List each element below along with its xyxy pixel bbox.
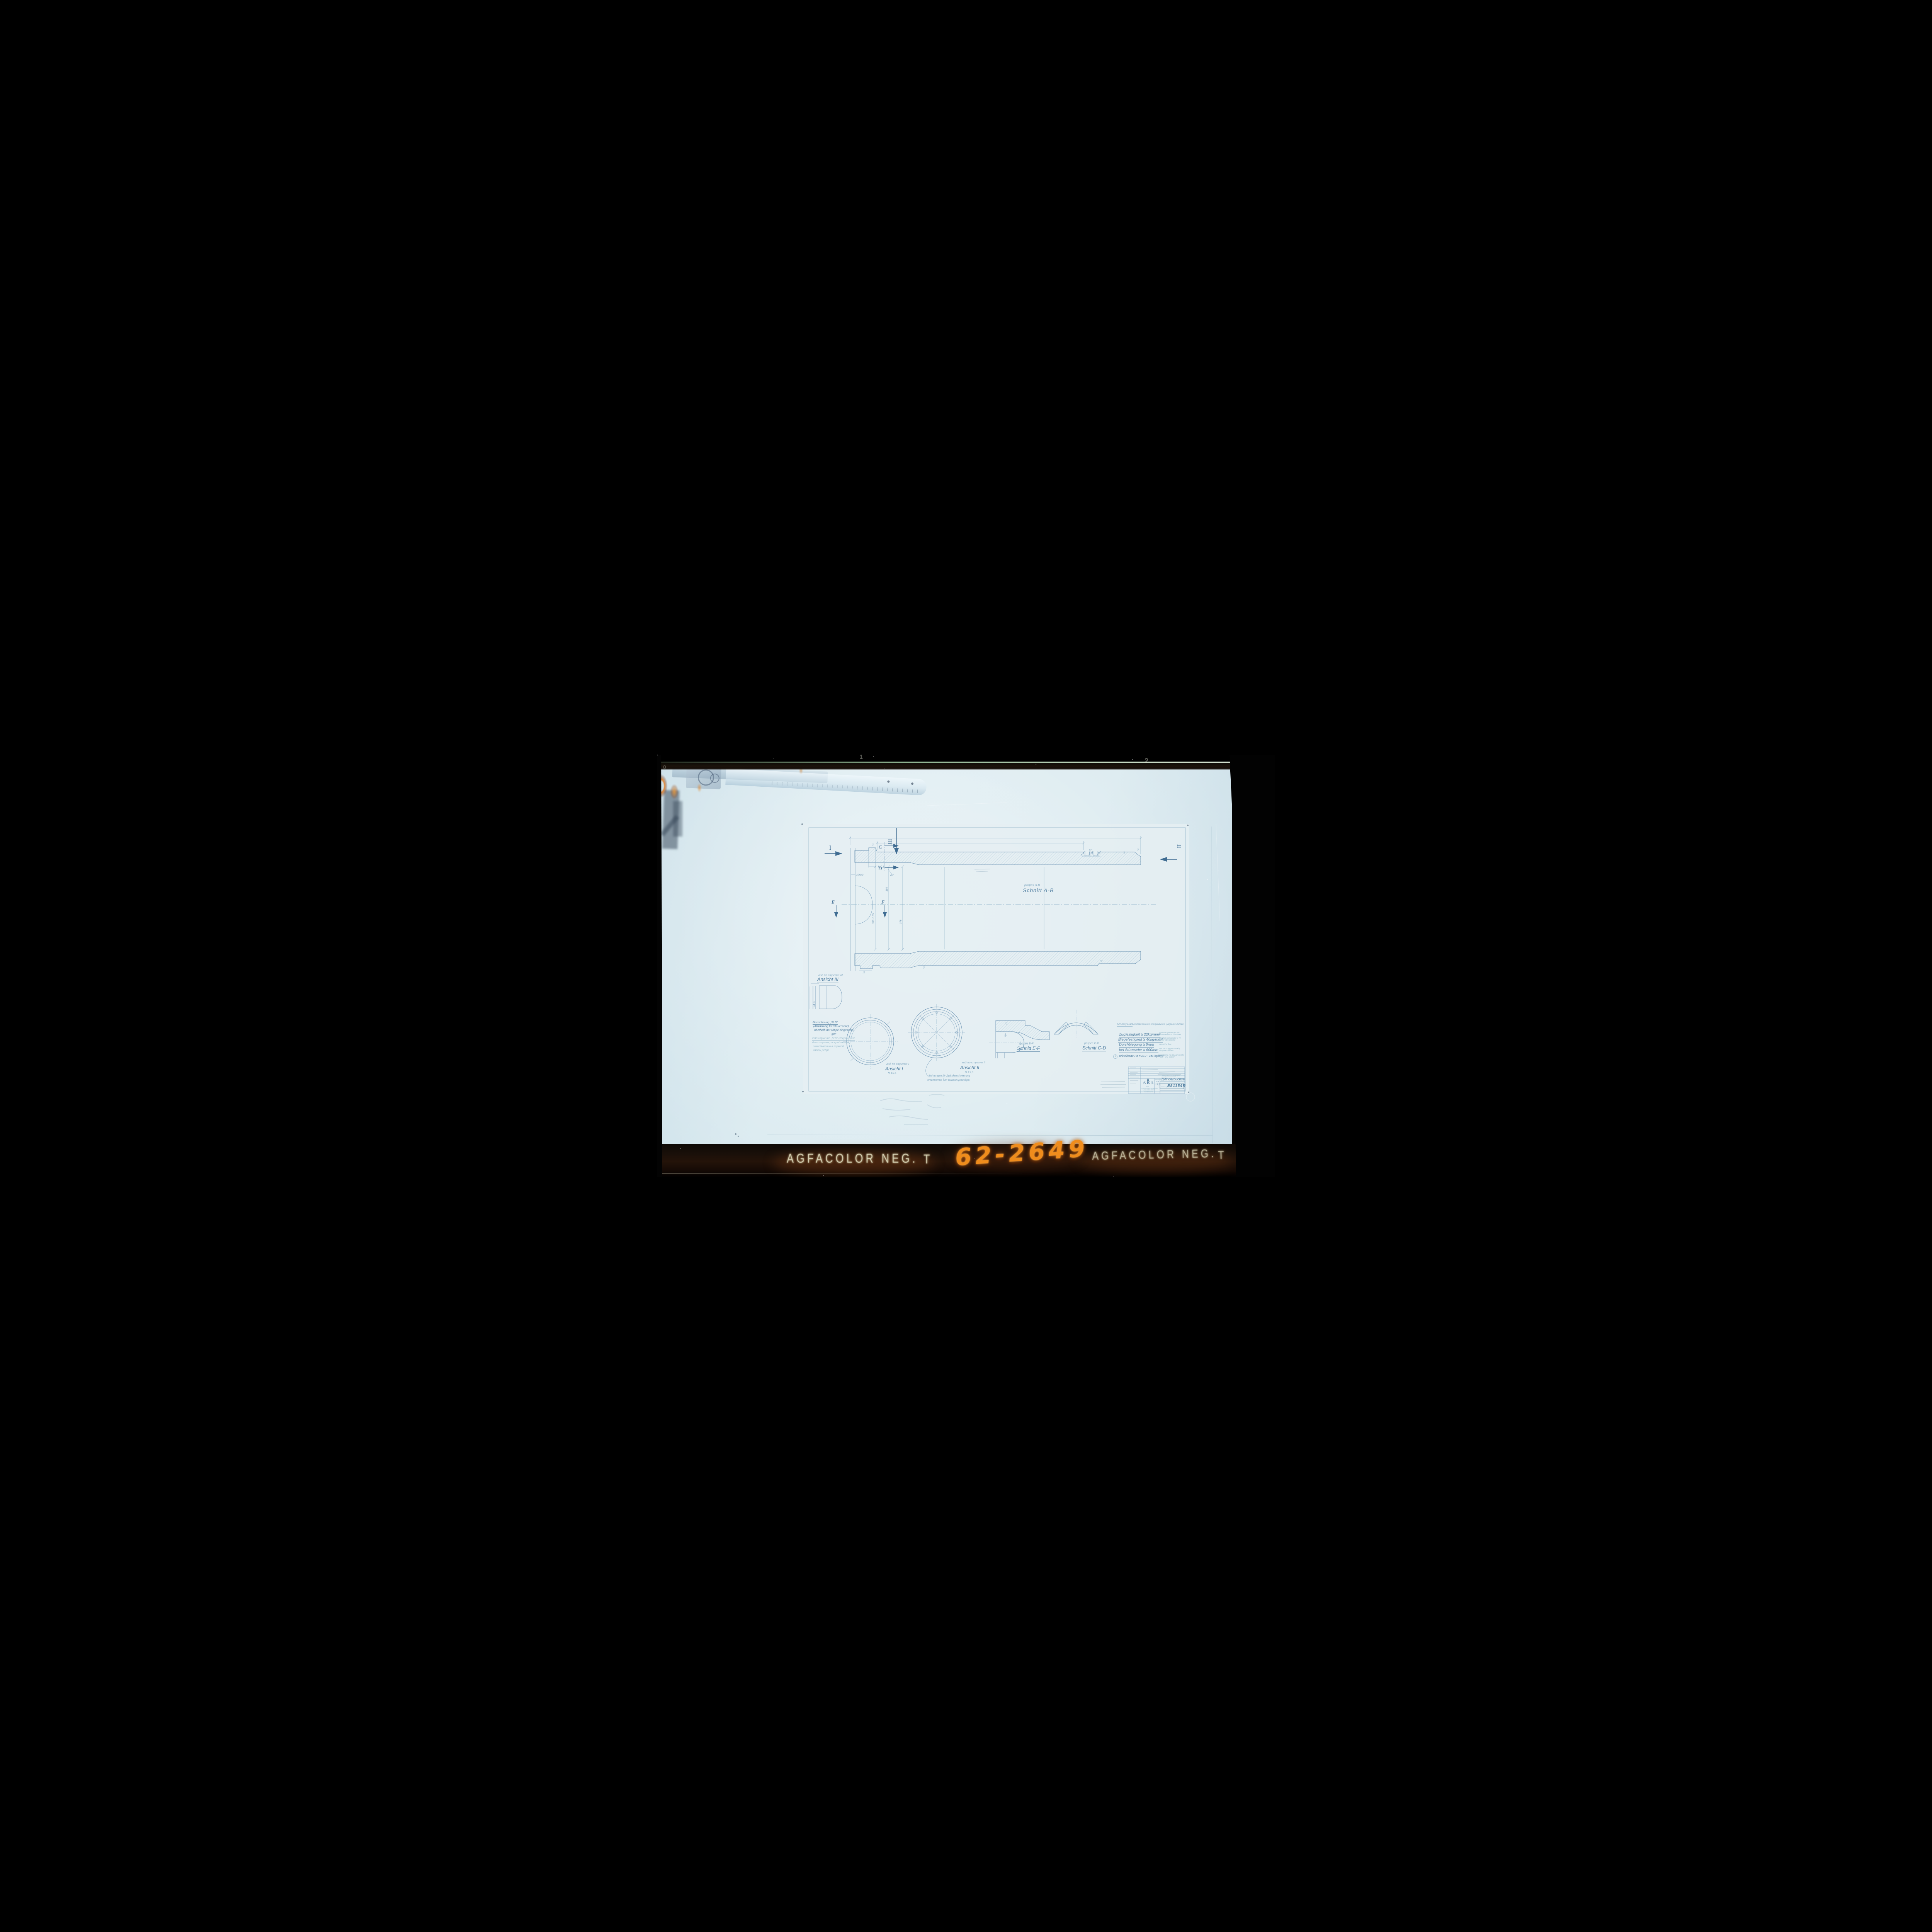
drawing-sheet [735, 823, 1195, 1137]
section-ab-label-de: Schnitt A-B [1023, 888, 1054, 894]
dim-lip: 8±0,1 [878, 866, 884, 868]
marker-iii: III [886, 839, 893, 845]
material-value: Центробежное специальное чугунное литье [1133, 1023, 1184, 1026]
marking-note-ru2: для стороны распредижения) [812, 1041, 850, 1044]
titleblock-org4: MAGDEBURG [1144, 1092, 1153, 1093]
property-tensile-ru: Предел прочности при растяжении ≥ 22 кг/… [1159, 1032, 1183, 1036]
agfacolor-brand-left: AGFACOLOR NEG. [787, 1151, 918, 1166]
property-deflection-ru: прогиб ≥ 9мм [1159, 1044, 1172, 1046]
property-span-ru: при расстоянии между опорами 600мм [1159, 1048, 1183, 1052]
film-bottom-edge-highlight [657, 1173, 1024, 1174]
film-edge-green-line [657, 762, 1275, 763]
dim-step12: 12 [862, 972, 865, 974]
view3-label-de: Ansicht III [817, 977, 838, 983]
dim-chamfer: 45° [890, 874, 894, 877]
view3-label-ru: вид по стрелке III [818, 974, 843, 977]
rib-stamp-text: St S [813, 1001, 816, 1007]
dim-dia378: 378 [900, 920, 902, 924]
marking-note-de2: (Abkürzung für Steuerseite) [813, 1025, 849, 1028]
marking-note-ru4: части ребра [813, 1049, 829, 1052]
agfacolor-brand-left-t: T [923, 1152, 933, 1167]
film-frame-number-1: 1 [859, 755, 863, 761]
dim-dia380: 380+0,05 [872, 913, 875, 924]
dim-angle15: 15° [1124, 851, 1126, 854]
property-bending-ru: Предел прочности ≥ 40 кг/мм² при изгибе [1159, 1037, 1183, 1042]
view2-label-de: Ansicht II [960, 1065, 979, 1071]
brinell-ru: Твердость по Бринеллю Hв = 210 - 241 кг/… [1158, 1054, 1184, 1059]
dim-wall: 10+0,3 [856, 874, 864, 876]
property-bending-de: Biegefestigkeit ≥ 40kg/mm² [1118, 1038, 1163, 1043]
view2-label-ru: вид по стрелке II [962, 1061, 985, 1064]
titleblock-part-de: Zylinderbuchse [1161, 1078, 1185, 1081]
material-label: Материал [1117, 1023, 1133, 1027]
section-ab-label-ru: разрез A-B [1024, 884, 1040, 887]
view1-scale: M 1:2,5 [888, 1072, 896, 1075]
ghost-pencil-scribbles [880, 1094, 944, 1125]
view2-scale: M 1:2,5 [965, 1071, 973, 1074]
property-span-de: bei Stützweite = 600mm [1119, 1048, 1158, 1053]
agfacolor-brand-right: AGFACOLOR NEG. [1092, 1147, 1216, 1163]
property-deflection-de: Durchbiegung ≥ 9mm [1119, 1043, 1154, 1048]
property-tensile-de: Zugfestigkeit ≥ 22kg/mm² [1119, 1033, 1160, 1037]
dim-angle30: 30° [1089, 849, 1092, 851]
titleblock-part-ru: втулка цилиндра [1162, 1075, 1180, 1077]
section-ef-label-de: Schnitt E-F [1017, 1046, 1040, 1052]
lube-note-ru: отверстия для смазки цилиндра [927, 1079, 969, 1082]
titleblock-scale1: 1:1 [1156, 1081, 1159, 1083]
marking-note-de4: gen [832, 1032, 837, 1036]
film-frame-number-0: 0 [663, 764, 666, 770]
brinell-de: Brinellhärte Hв = 210 - 241 kg/mm² [1119, 1054, 1164, 1058]
view1-label-de: Ansicht I [885, 1066, 903, 1072]
marker-i: I [829, 845, 831, 851]
lube-note-de: Bohrungen für Zylinderschmierung [929, 1075, 970, 1078]
view1-label-ru: вид по стрелке I [886, 1063, 909, 1066]
titleblock-scale2: 1:2,5 [1155, 1084, 1160, 1086]
dim-dia356: 356 [886, 887, 888, 891]
section-cd-label-ru: разрез C-D [1084, 1042, 1099, 1045]
section-cd-label-de: Schnitt C-D [1082, 1046, 1106, 1051]
skl-logo-text: SKL [1143, 1081, 1155, 1086]
film-frame-number-2: 2 [1145, 757, 1148, 765]
titleblock-dwgno: E81154R [1167, 1084, 1186, 1088]
brinell-prefix: a [1113, 1054, 1117, 1059]
marker-ii: II [1176, 844, 1182, 848]
marking-note-ru3: заклеймовано в верхней [813, 1045, 844, 1048]
dust-specks [657, 755, 658, 755]
marking-note-de3: oberhalb der Rippe eingeschla- [814, 1029, 854, 1032]
agfacolor-brand-right-t: T [1218, 1149, 1227, 1162]
marker-c: C [879, 844, 882, 850]
section-ef-label-ru: разрез E-F [1019, 1042, 1034, 1045]
drawing-linework: C D E F I III II 8±0,1 10+0,3 45° 8+0,1 … [657, 755, 1275, 1177]
film-negative-photo: C D E F I III II 8±0,1 10+0,3 45° 8+0,1 … [657, 755, 1275, 1177]
marker-f: F [881, 899, 885, 905]
marker-e: E [831, 899, 835, 905]
marking-note-ru1: Опознаучение „St S“ (сокращение [812, 1037, 855, 1041]
